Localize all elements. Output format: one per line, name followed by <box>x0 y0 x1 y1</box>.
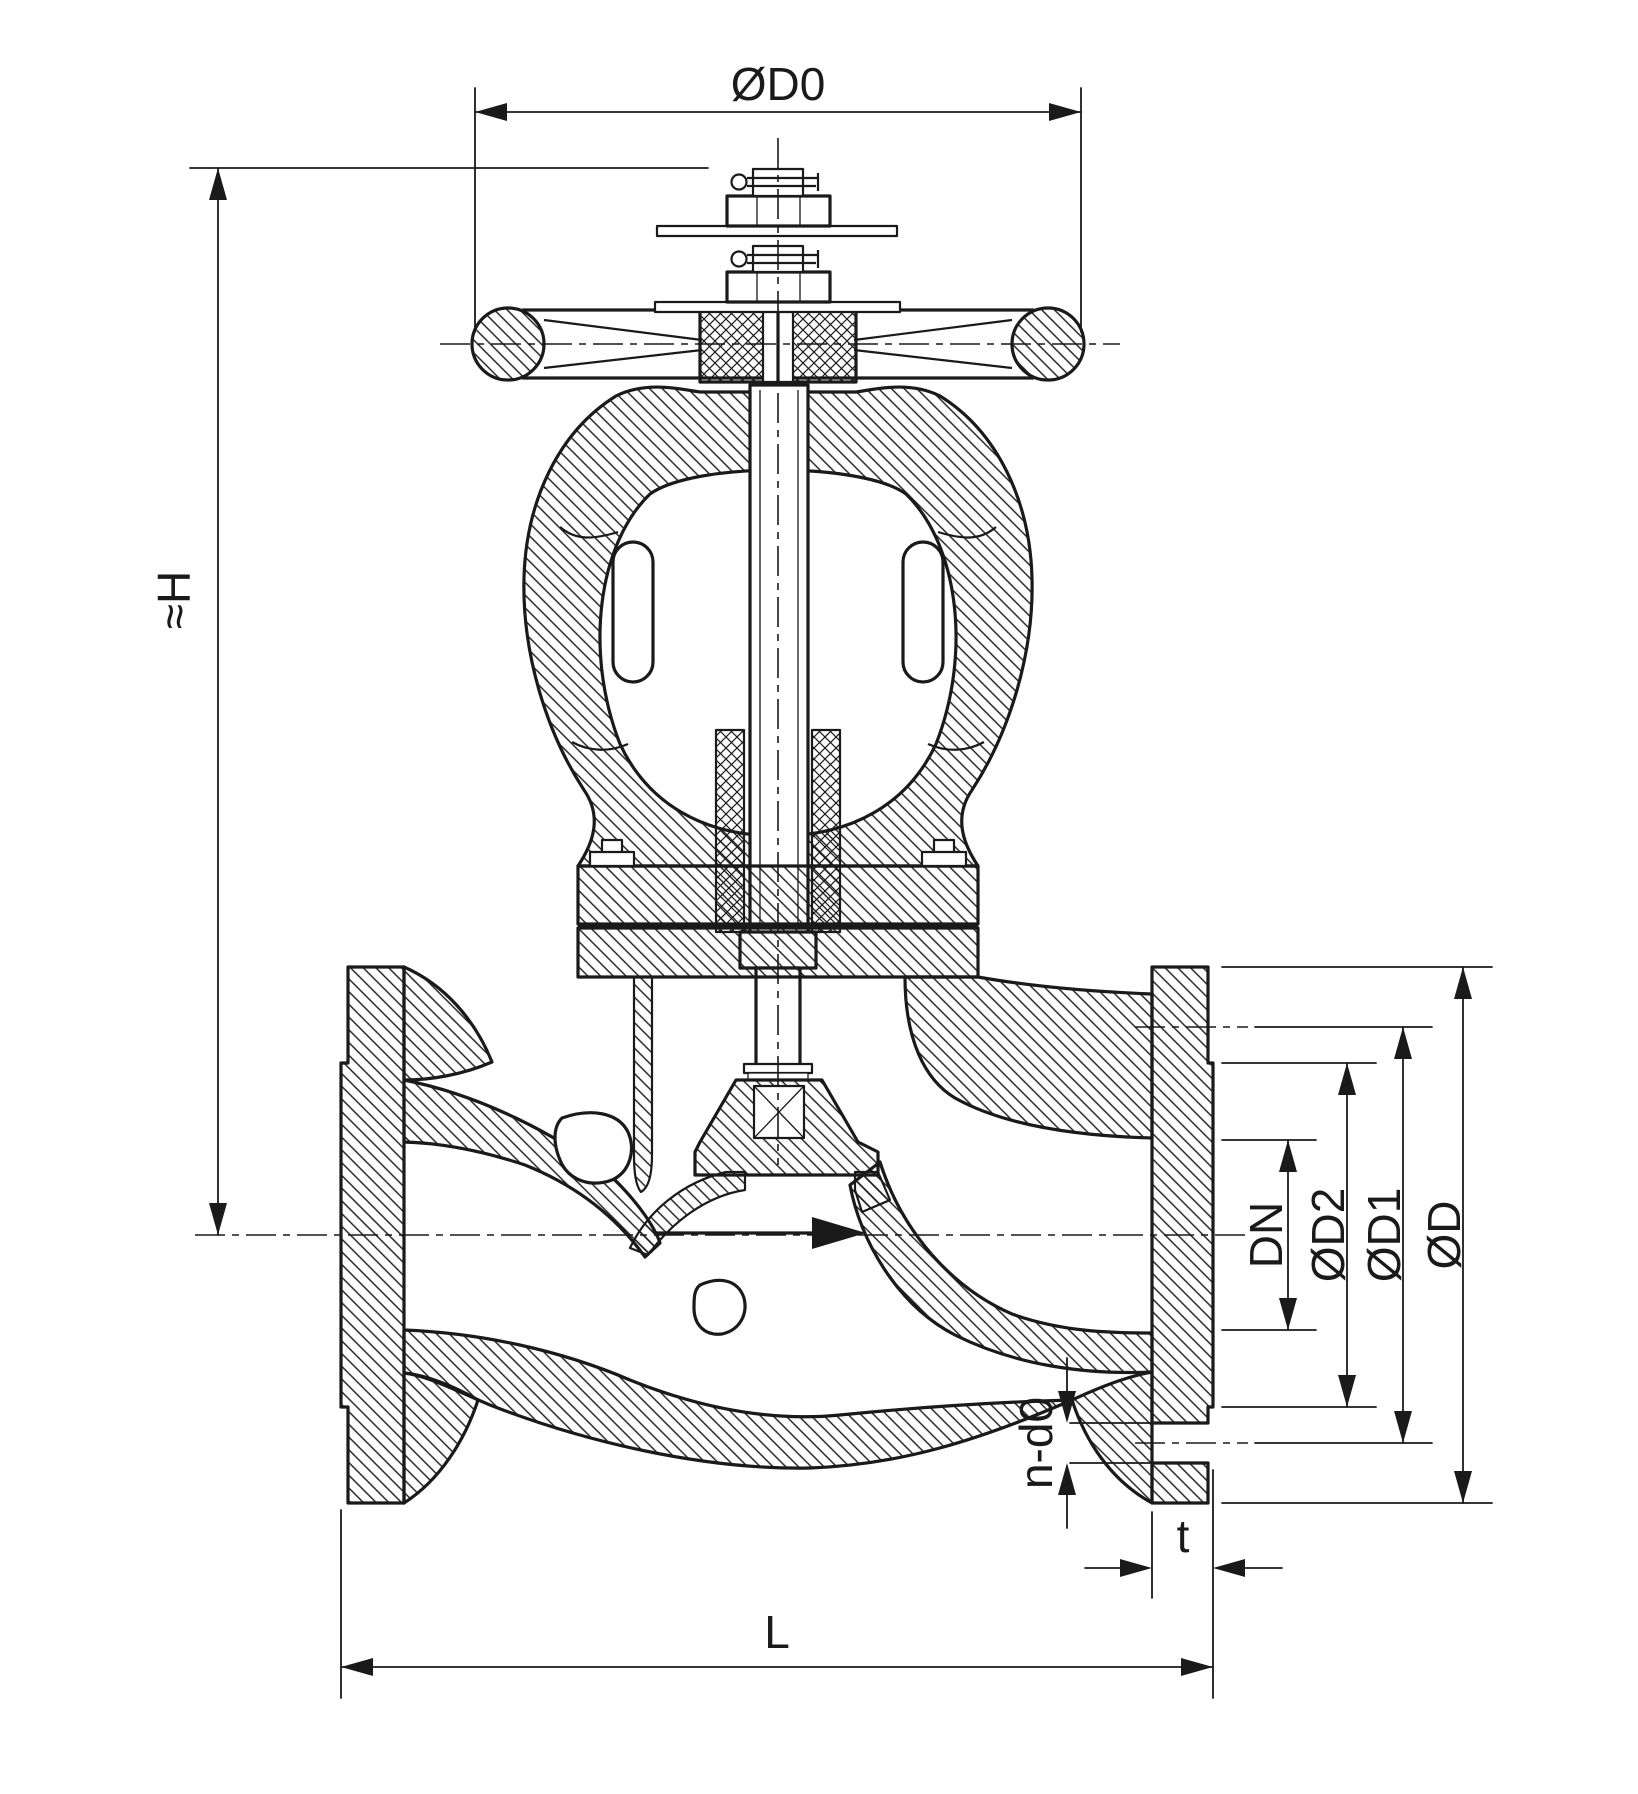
right-pipe-flange-upper <box>1152 967 1213 1423</box>
drawing-sheet: ØD0 ≈H DN ØD2 ØD1 ØD n-d0 <box>0 0 1638 1794</box>
yoke-window-right <box>903 542 943 682</box>
dim-label-d: ØD <box>1418 1201 1470 1270</box>
web-core-hole-lower <box>694 1280 745 1334</box>
dim-label-t: t <box>1177 1510 1190 1562</box>
right-pipe-flange-lower <box>1152 1463 1208 1503</box>
bonnet-neck-web <box>634 977 652 1192</box>
web-core-hole-upper <box>555 1113 631 1183</box>
dim-label-dn: DN <box>1240 1202 1292 1268</box>
stem-shaft <box>750 385 808 933</box>
dim-label-h: ≈H <box>148 571 200 629</box>
yoke-window-left <box>613 542 653 682</box>
dim-label-nd0: n-d0 <box>1010 1397 1062 1489</box>
dim-label-d1: ØD1 <box>1358 1188 1410 1283</box>
dim-label-d0: ØD0 <box>731 58 826 110</box>
body-bottom-wall <box>404 1330 1072 1468</box>
flow-arrow-head <box>812 1217 866 1249</box>
inlet-lower-fillet <box>404 1373 478 1503</box>
flow-arrow <box>655 1217 866 1249</box>
globe-valve-section-drawing: ØD0 ≈H DN ØD2 ØD1 ØD n-d0 <box>0 0 1638 1794</box>
outlet-lower-fillet <box>1072 1372 1152 1503</box>
cotter-pin-upper <box>732 175 747 190</box>
outlet-upper-wall <box>905 977 1152 1138</box>
dim-face-to-face: L <box>341 1510 1213 1698</box>
valve-disc <box>695 1064 878 1175</box>
cotter-pin-lower <box>732 252 747 267</box>
inlet-hub-fillet <box>404 967 492 1080</box>
dim-label-l: L <box>764 1606 790 1658</box>
outlet-floor-wall <box>850 1162 1152 1373</box>
dim-label-d2: ØD2 <box>1302 1188 1354 1283</box>
